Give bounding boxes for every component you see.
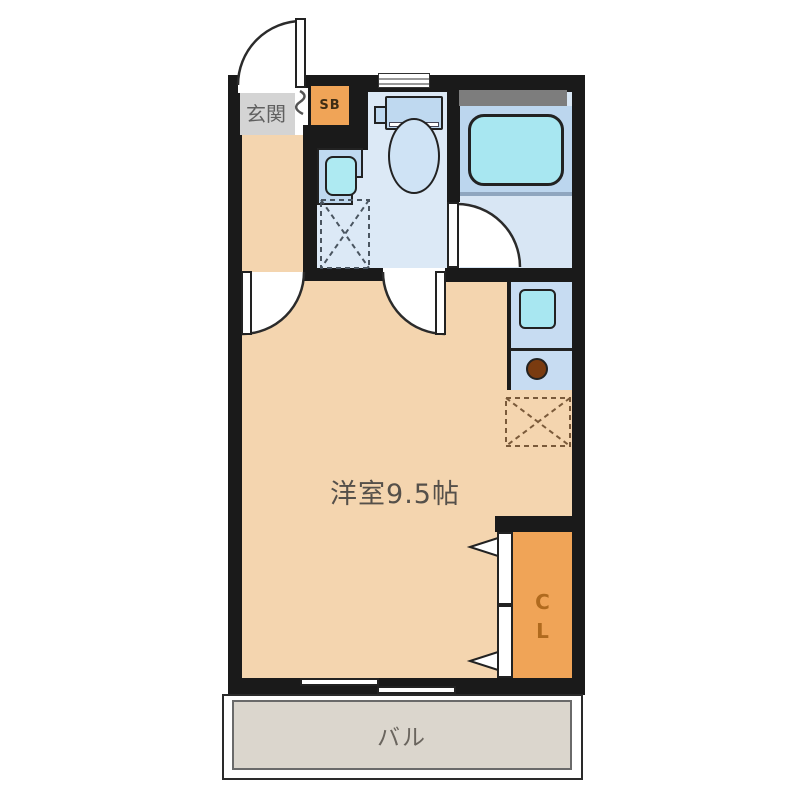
closet-bifold-door [497, 532, 513, 605]
balcony-label: バル [377, 718, 427, 752]
genkan-label: 玄関 [246, 98, 310, 127]
kitchen-sink-icon [519, 289, 556, 329]
wall-segment [445, 268, 585, 282]
hand-sink-icon [325, 156, 357, 196]
closet: CL [513, 532, 572, 678]
sliding-window-panel [377, 686, 456, 694]
toilet-flush-handle [374, 106, 387, 124]
entrance-opening [238, 77, 302, 93]
bathtub-icon [468, 114, 564, 186]
floor-plan: SB CL バル [0, 0, 800, 800]
balcony: バル [232, 700, 572, 770]
counter-divider [510, 348, 572, 351]
closet-label: CL [531, 590, 555, 648]
wall-segment [495, 516, 585, 532]
closet-bifold-door [497, 605, 513, 678]
wall-segment [303, 268, 383, 281]
sliding-window-panel [300, 678, 379, 686]
bathroom-door-opening [447, 202, 460, 268]
shoe-box: SB [308, 83, 352, 128]
bathroom-shelf [459, 90, 567, 106]
main-room-label: 洋室9.5帖 [230, 472, 560, 511]
corridor [242, 135, 303, 275]
toilet-bowl-icon [388, 118, 440, 194]
burner-icon [526, 358, 548, 380]
window-icon [378, 73, 430, 88]
wall-segment [350, 83, 368, 128]
wall-segment [303, 125, 368, 150]
washroom-door-opening [383, 268, 445, 281]
